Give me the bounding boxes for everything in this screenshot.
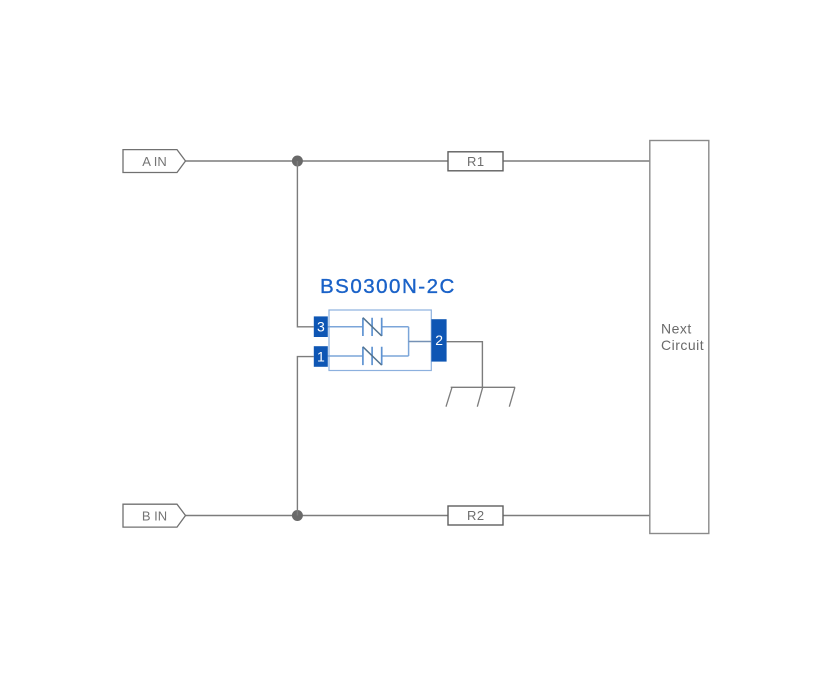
svg-text:1: 1 <box>317 348 325 364</box>
svg-text:R1: R1 <box>467 154 485 169</box>
svg-text:Circuit: Circuit <box>661 337 704 353</box>
svg-text:3: 3 <box>317 319 325 335</box>
svg-text:2: 2 <box>435 332 443 348</box>
svg-text:R2: R2 <box>467 508 485 523</box>
svg-text:A IN: A IN <box>142 154 167 169</box>
svg-text:Next: Next <box>661 321 692 337</box>
svg-text:B IN: B IN <box>142 508 167 523</box>
svg-text:BS0300N-2C: BS0300N-2C <box>320 275 456 298</box>
